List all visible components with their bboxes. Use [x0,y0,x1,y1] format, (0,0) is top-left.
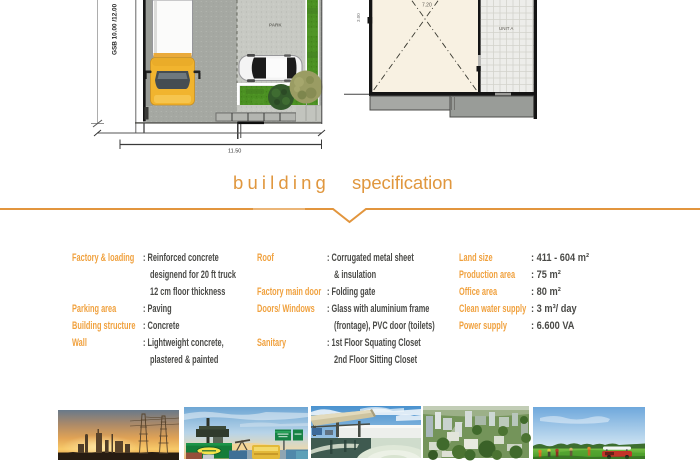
svg-text:3.00: 3.00 [356,13,361,22]
svg-text:PARK: PARK [269,23,282,28]
svg-text:7.20: 7.20 [422,3,432,9]
svg-text:GSB 10.00 /12.00: GSB 10.00 /12.00 [112,3,119,55]
svg-text:UNIT A: UNIT A [499,26,513,31]
svg-text:11.50: 11.50 [228,149,241,155]
